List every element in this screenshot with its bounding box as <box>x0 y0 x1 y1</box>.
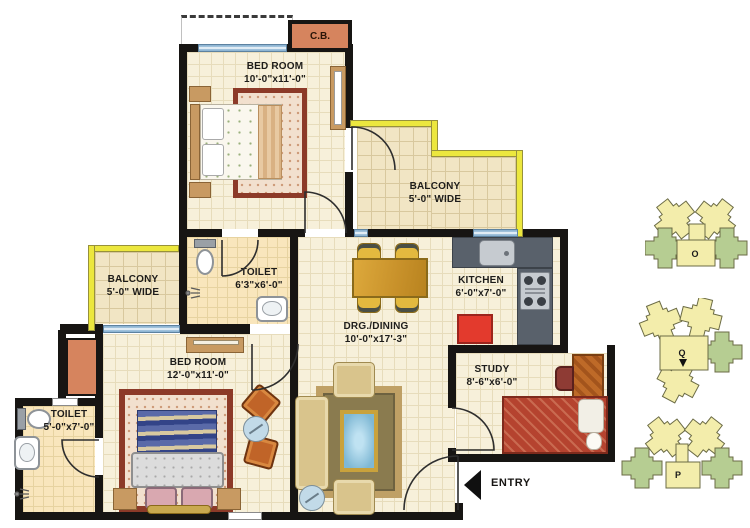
room-dims: 12'-0"x11'-0" <box>136 369 260 382</box>
window <box>52 398 78 406</box>
balcony-right-floor-upper <box>357 127 431 229</box>
grill <box>525 288 545 296</box>
wall <box>345 172 353 237</box>
room-name: BALCONY <box>385 180 485 193</box>
balcony-left-label: BALCONY 5'-0" WIDE <box>87 273 179 299</box>
balcony-wall <box>431 150 523 157</box>
toilet1-label: TOILET 6'3"x6'-0" <box>215 266 303 292</box>
wc-bowl <box>196 249 214 275</box>
sofa-icon <box>295 396 329 490</box>
coffee-table-icon <box>340 410 378 472</box>
study-label: STUDY 8'-6"x6'-0" <box>446 363 538 389</box>
bed-blanket-fold <box>258 105 282 179</box>
room-name: TOILET <box>33 408 105 421</box>
room-dims: 5'-0" WIDE <box>87 286 179 299</box>
wall <box>15 398 52 406</box>
wall <box>179 44 187 237</box>
balcony-right-label: BALCONY 5'-0" WIDE <box>385 180 485 206</box>
tower-wing <box>702 448 742 488</box>
tower-core <box>666 462 700 488</box>
dresser-icon <box>186 337 244 353</box>
room-name: KITCHEN <box>436 274 526 287</box>
window <box>354 229 368 237</box>
entry-label: ENTRY <box>491 477 531 489</box>
cupboard-label: C.B. <box>310 31 330 42</box>
burner <box>537 276 546 285</box>
room-name: BALCONY <box>87 273 179 286</box>
armchair-icon <box>333 362 375 398</box>
room-name: STUDY <box>446 363 538 376</box>
room-dims: 5'-0" WIDE <box>385 193 485 206</box>
desk-chair-icon <box>555 366 574 391</box>
wall <box>448 454 615 462</box>
pillow <box>202 144 224 176</box>
wall <box>288 512 463 520</box>
bedside-table <box>189 182 211 198</box>
room-name: DRG./DINING <box>318 320 434 333</box>
armchair-icon <box>333 479 375 515</box>
washbasin-icon <box>256 296 288 322</box>
room-dims: 5'-0"x7'-0" <box>33 421 105 434</box>
burner <box>537 297 546 306</box>
wardrobe-niche <box>66 338 98 396</box>
cat-icon <box>586 432 602 450</box>
room-dims: 6'3"x6'-0" <box>215 279 303 292</box>
room-name: BED ROOM <box>136 356 260 369</box>
wall <box>455 503 463 520</box>
wc-icon <box>194 239 216 248</box>
pillow <box>202 108 224 140</box>
dresser-top <box>193 340 239 345</box>
washbasin-icon <box>14 436 40 470</box>
bed-headboard <box>190 104 200 180</box>
balcony-wall <box>88 245 179 252</box>
wall <box>448 345 568 353</box>
tower-cluster-o: O <box>645 198 749 298</box>
bed-quilt <box>131 452 224 488</box>
wall <box>258 229 305 237</box>
bedside-table <box>217 488 241 510</box>
balcony-wall <box>350 120 438 127</box>
terrace-projection <box>181 15 293 46</box>
room-dims: 10'-0"x17'-3" <box>318 333 434 346</box>
room-name: TOILET <box>215 266 303 279</box>
tower-cluster-q: Q <box>636 298 744 418</box>
wall <box>58 330 66 406</box>
tower-letter: Q <box>678 348 685 358</box>
bedside-table <box>113 488 137 510</box>
wall <box>607 345 615 462</box>
floor-plan: C.B. <box>0 0 750 528</box>
kitchen-label: KITCHEN 6'-0"x7'-0" <box>436 274 526 300</box>
side-table-icon <box>243 416 269 442</box>
bedside-table <box>189 86 211 102</box>
tower-wing <box>622 448 662 488</box>
bed-footboard <box>147 505 211 514</box>
wc-icon <box>17 408 26 430</box>
pillow <box>578 399 604 433</box>
room-dims: 6'-0"x7'-0" <box>436 287 526 300</box>
room-name: BED ROOM <box>212 60 338 73</box>
room-dims: 8'-6"x6'-0" <box>446 376 538 389</box>
wall <box>179 229 222 237</box>
tower-letter: P <box>675 470 681 480</box>
sink-icon <box>479 240 515 266</box>
desk-icon <box>572 354 604 398</box>
window <box>103 325 180 333</box>
wall <box>179 237 187 332</box>
window <box>228 512 262 520</box>
wall <box>345 44 353 128</box>
wall <box>60 324 103 334</box>
sink-drain <box>504 251 509 256</box>
toilet2-label: TOILET 5'-0"x7'-0" <box>33 408 105 434</box>
window <box>198 44 287 52</box>
bedroom1-label: BED ROOM 10'-0"x11'-0" <box>212 60 338 86</box>
fridge-icon <box>457 314 493 344</box>
dining-table-icon <box>352 258 428 298</box>
wall <box>180 324 250 334</box>
tower-cluster-p: P <box>620 416 746 528</box>
window <box>473 229 518 237</box>
tower-letter: O <box>691 249 698 259</box>
drg-dining-label: DRG./DINING 10'-0"x17'-3" <box>318 320 434 346</box>
wall <box>179 44 199 52</box>
cupboard-box: C.B. <box>288 20 352 52</box>
entry-arrow-icon <box>464 470 481 500</box>
wall <box>560 229 568 353</box>
balcony-wall <box>516 150 523 237</box>
side-table-icon <box>299 485 325 511</box>
room-dims: 10'-0"x11'-0" <box>212 73 338 86</box>
bedroom2-label: BED ROOM 12'-0"x11'-0" <box>136 356 260 382</box>
wall <box>448 448 456 462</box>
wall <box>345 229 568 237</box>
